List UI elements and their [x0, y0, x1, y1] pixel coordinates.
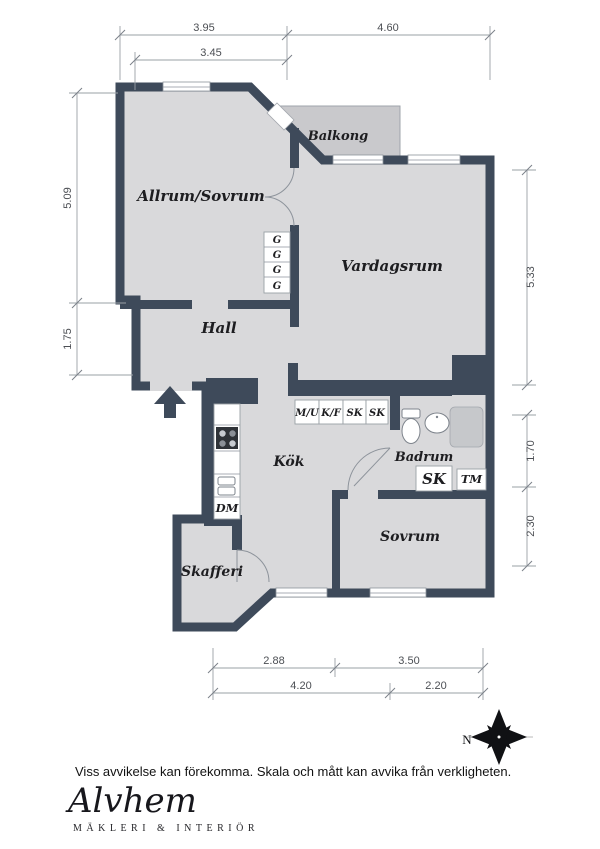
cabinet-kf-label: K/F [320, 408, 341, 419]
room-vardagsrum-label: Vardagsrum [341, 257, 443, 275]
dim-bottom-lower-2: 2.20 [425, 680, 446, 692]
floorplan-page: Balkong [0, 0, 600, 849]
dim-top-inner: 3.45 [200, 47, 221, 59]
dim-bottom-lower-1: 4.20 [290, 680, 311, 692]
dishwasher-dm-label: DM [215, 501, 240, 515]
room-balkong-label: Balkong [307, 129, 369, 144]
dim-right-3: 2.30 [525, 515, 537, 536]
dim-top-1: 3.95 [193, 22, 214, 34]
dimension-bottom: 2.88 3.50 4.20 2.20 [208, 648, 488, 700]
dim-left-2: 1.75 [62, 328, 74, 349]
cabinet-sk-label: SK [347, 408, 364, 419]
closet-g-label: G [273, 235, 282, 246]
dimension-top: 3.95 4.60 3.45 [115, 22, 495, 90]
washbasin-icon [425, 413, 449, 433]
brand-subtitle: MÄKLERI & INTERIÖR [73, 823, 259, 834]
washing-machine-tm-label: TM [461, 472, 484, 486]
toilet-icon [402, 409, 420, 444]
compass-rose: N [462, 709, 533, 765]
stove-icon [216, 427, 238, 449]
wardrobe-closets: G G G G [264, 232, 290, 293]
kitchen-counter: DM [214, 404, 240, 519]
closet-g-label: G [273, 250, 282, 261]
closet-g-label: G [273, 281, 282, 292]
floorplan: Balkong [0, 0, 600, 849]
compass-north-label: N [462, 732, 472, 747]
room-sovrum-label: Sovrum [380, 529, 440, 545]
bathroom-sk-label: SK [422, 470, 447, 488]
room-hall-label: Hall [200, 319, 237, 337]
dim-left-1: 5.09 [62, 187, 74, 208]
cabinet-sk-label: SK [369, 408, 386, 419]
room-skafferi-label: Skafferi [181, 564, 243, 580]
dim-bottom-upper-2: 3.50 [398, 655, 419, 667]
closet-g-label: G [273, 265, 282, 276]
dim-bottom-upper-1: 2.88 [263, 655, 284, 667]
kitchen-cabinet-row: M/U K/F SK SK [294, 400, 388, 424]
dim-right-2: 1.70 [525, 440, 537, 461]
cabinet-mu-label: M/U [294, 408, 320, 419]
dim-right-1: 5.33 [525, 266, 537, 287]
room-badrum-label: Badrum [394, 450, 454, 465]
disclaimer-text: Viss avvikelse kan förekomma. Skala och … [75, 764, 511, 779]
shower [450, 407, 483, 447]
room-allrum-label: Allrum/Sovrum [135, 187, 264, 205]
dim-top-2: 4.60 [377, 22, 398, 34]
brand-logo: Alvhem [68, 781, 197, 821]
room-kok-label: Kök [273, 454, 305, 470]
dimension-right: 5.33 1.70 2.30 [512, 165, 537, 571]
exterior-walls [120, 87, 490, 627]
